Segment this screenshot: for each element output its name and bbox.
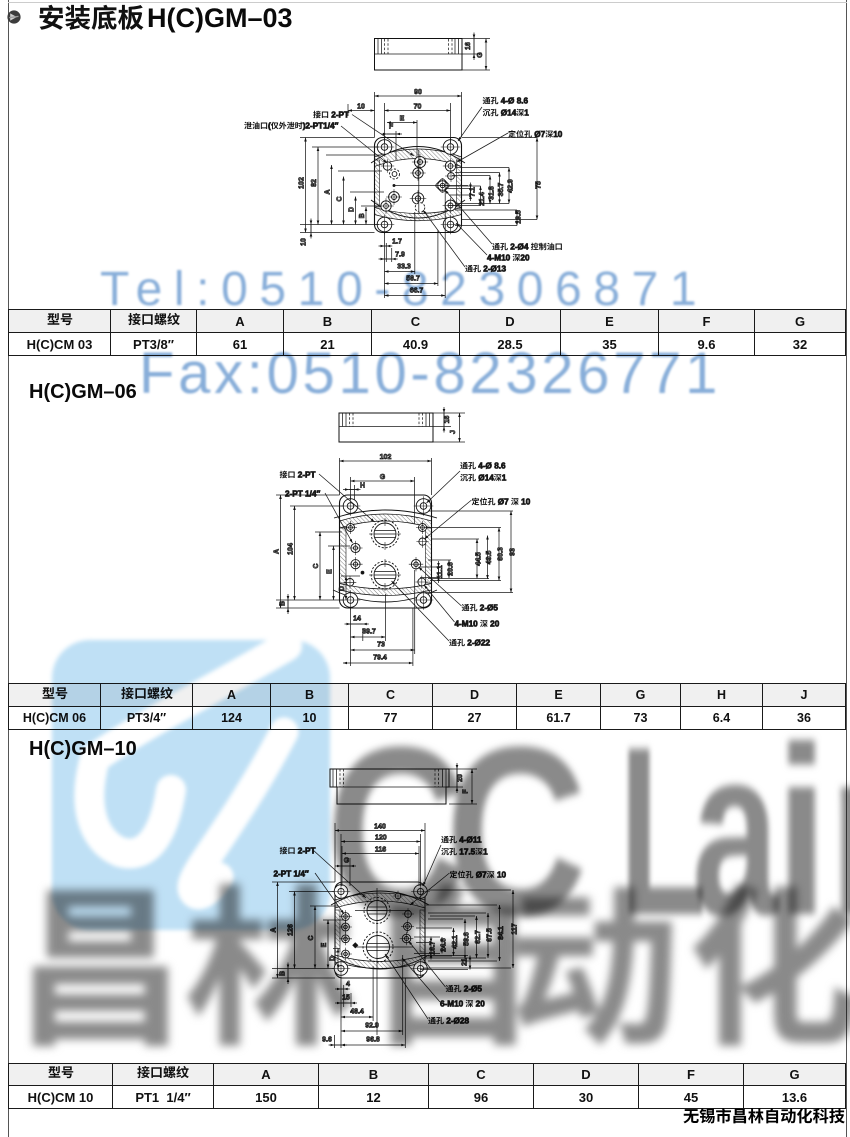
svg-text:A: A xyxy=(324,189,331,194)
svg-text:10: 10 xyxy=(357,103,365,110)
svg-text:102: 102 xyxy=(380,454,392,461)
svg-text:2-PT: 2-PT xyxy=(296,847,316,856)
svg-text:10: 10 xyxy=(495,871,507,880)
svg-text:Ø14: Ø14 xyxy=(476,474,494,483)
svg-text:60.3: 60.3 xyxy=(498,547,505,561)
svg-text:92.9: 92.9 xyxy=(365,1023,379,1030)
svg-text:10: 10 xyxy=(519,498,531,507)
svg-text:1.7: 1.7 xyxy=(392,239,402,246)
svg-text:93: 93 xyxy=(510,548,517,556)
svg-text:79.4: 79.4 xyxy=(373,655,387,662)
svg-text:20: 20 xyxy=(473,1000,485,1009)
svg-text:117: 117 xyxy=(512,923,519,934)
svg-text:120: 120 xyxy=(375,834,387,841)
svg-text:1: 1 xyxy=(483,848,488,857)
svg-text:4: 4 xyxy=(346,981,350,988)
svg-text:E: E xyxy=(326,569,333,574)
svg-text:70: 70 xyxy=(414,103,422,110)
svg-text:10: 10 xyxy=(301,238,308,246)
svg-text:16: 16 xyxy=(465,42,472,50)
svg-text:C: C xyxy=(308,935,315,940)
svg-text:1: 1 xyxy=(524,109,529,118)
svg-text:15: 15 xyxy=(342,995,350,1002)
svg-text:126: 126 xyxy=(287,924,294,936)
svg-text:2-Ø5: 2-Ø5 xyxy=(462,985,483,994)
svg-text:140: 140 xyxy=(374,823,386,830)
svg-text:J: J xyxy=(450,430,457,434)
svg-text:66.7: 66.7 xyxy=(410,288,424,295)
svg-text:E: E xyxy=(321,942,328,947)
svg-text:6-M10: 6-M10 xyxy=(440,1000,465,1009)
svg-text:Ø14: Ø14 xyxy=(499,109,517,118)
svg-text:62.7: 62.7 xyxy=(475,930,482,944)
svg-text:20: 20 xyxy=(488,620,500,629)
svg-text:7.9: 7.9 xyxy=(395,252,405,259)
svg-text:D: D xyxy=(348,207,355,212)
svg-text:11.1: 11.1 xyxy=(437,565,444,578)
svg-text:16: 16 xyxy=(444,416,451,424)
svg-text:C: C xyxy=(313,563,320,568)
svg-text:44.5: 44.5 xyxy=(476,552,483,566)
svg-text:7.1: 7.1 xyxy=(470,187,477,197)
svg-text:24.6: 24.6 xyxy=(441,938,448,952)
svg-text:19.5: 19.5 xyxy=(516,210,523,224)
svg-text:49.5: 49.5 xyxy=(486,551,493,565)
svg-text:B: B xyxy=(280,971,287,976)
svg-text:82: 82 xyxy=(311,179,318,187)
svg-text:2-Ø28: 2-Ø28 xyxy=(444,1017,469,1026)
svg-text:A: A xyxy=(270,927,277,932)
svg-text:48.4: 48.4 xyxy=(350,1009,364,1016)
svg-text:42.9: 42.9 xyxy=(508,179,515,193)
svg-text:)2-PT1/4″: )2-PT1/4″ xyxy=(303,122,339,131)
svg-text:A: A xyxy=(273,549,280,554)
svg-text:4-Ø 8.6: 4-Ø 8.6 xyxy=(499,97,529,106)
svg-text:58.7: 58.7 xyxy=(406,276,420,283)
svg-text:Ø7: Ø7 xyxy=(496,498,511,507)
svg-text:59.6: 59.6 xyxy=(464,932,471,946)
svg-text:F: F xyxy=(463,789,470,794)
svg-text:104: 104 xyxy=(287,543,294,555)
svg-text:4-M10: 4-M10 xyxy=(487,254,512,263)
svg-text:G: G xyxy=(344,858,350,865)
svg-text:20: 20 xyxy=(520,254,530,263)
svg-text:102: 102 xyxy=(298,177,305,189)
svg-text:116: 116 xyxy=(375,846,386,853)
svg-text:4-Ø 8.6: 4-Ø 8.6 xyxy=(476,462,506,471)
svg-text:4-Ø11: 4-Ø11 xyxy=(457,836,482,845)
svg-text:84.1: 84.1 xyxy=(498,926,505,940)
svg-text:E: E xyxy=(400,115,405,122)
svg-text:9.6: 9.6 xyxy=(322,1037,332,1044)
svg-text:2-Ø5: 2-Ø5 xyxy=(478,604,499,613)
svg-text:Ø7: Ø7 xyxy=(532,130,546,139)
svg-text:2-Ø13: 2-Ø13 xyxy=(481,265,506,274)
svg-text:B: B xyxy=(359,213,366,218)
svg-text:2-Ø22: 2-Ø22 xyxy=(465,639,490,648)
svg-text:2-PT 1/4″: 2-PT 1/4″ xyxy=(285,490,320,499)
svg-text:42.1: 42.1 xyxy=(452,935,459,949)
svg-text:73: 73 xyxy=(377,642,385,649)
svg-text:Ø7: Ø7 xyxy=(474,871,488,880)
svg-text:90: 90 xyxy=(414,89,422,96)
svg-text:F: F xyxy=(389,124,394,131)
svg-text:75: 75 xyxy=(536,181,543,189)
svg-text:39.7: 39.7 xyxy=(362,629,376,636)
svg-text:2-PT 1/4″: 2-PT 1/4″ xyxy=(274,870,309,879)
svg-text:14: 14 xyxy=(353,616,361,623)
svg-text:16.7: 16.7 xyxy=(430,941,437,955)
svg-text:20.6: 20.6 xyxy=(448,562,455,576)
svg-text:1: 1 xyxy=(502,474,507,483)
svg-text:2-PT: 2-PT xyxy=(329,111,349,120)
svg-text:(: ( xyxy=(268,122,271,131)
svg-text:B: B xyxy=(280,601,287,606)
svg-text:2-PT: 2-PT xyxy=(296,471,316,480)
svg-text:35.7: 35.7 xyxy=(498,183,505,197)
svg-text:10: 10 xyxy=(553,130,563,139)
svg-text:C: C xyxy=(336,196,343,201)
svg-text:H: H xyxy=(360,483,365,490)
svg-text:G: G xyxy=(380,474,386,481)
svg-text:D: D xyxy=(339,586,346,591)
svg-text:21: 21 xyxy=(462,958,469,966)
svg-text:4-M10: 4-M10 xyxy=(455,620,480,629)
svg-text:17.5: 17.5 xyxy=(457,848,476,857)
svg-text:96.8: 96.8 xyxy=(366,1037,380,1044)
svg-text:67.5: 67.5 xyxy=(487,928,494,942)
svg-text:21.4: 21.4 xyxy=(479,192,486,206)
svg-text:33.3: 33.3 xyxy=(397,264,411,271)
svg-text:31.8: 31.8 xyxy=(489,186,496,200)
svg-text:2-Ø4: 2-Ø4 xyxy=(508,243,531,252)
svg-text:20: 20 xyxy=(457,774,464,782)
svg-text:D: D xyxy=(330,956,337,961)
svg-text:G: G xyxy=(477,52,484,58)
